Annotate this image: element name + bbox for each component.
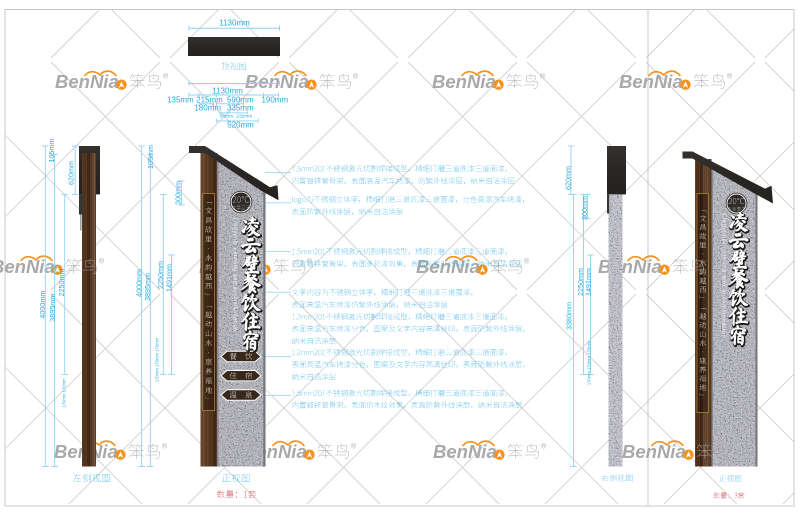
svg-text:105mm: 105mm [146, 145, 155, 169]
svg-text:170mm 170mm 170mm: 170mm 170mm 170mm [155, 337, 160, 382]
svg-text:190mm: 190mm [261, 95, 288, 104]
svg-text:®: ® [353, 73, 359, 81]
svg-text:4000mm: 4000mm [134, 269, 143, 297]
svg-text:520mm: 520mm [227, 121, 254, 130]
svg-text:620mm: 620mm [564, 166, 573, 190]
svg-text:®: ® [541, 443, 547, 451]
svg-text:93mm: 93mm [220, 113, 233, 119]
svg-text:BenNia: BenNia [0, 256, 55, 277]
svg-text:1491mm: 1491mm [584, 268, 593, 296]
svg-text:Lingyunbi catering and accommo: Lingyunbi catering and accommodation [232, 218, 238, 332]
svg-text:3895mm: 3895mm [48, 294, 57, 322]
svg-text:®: ® [163, 73, 169, 81]
svg-text:3380mm: 3380mm [565, 302, 574, 330]
svg-text:1130mm: 1130mm [219, 19, 250, 28]
svg-text:335mm: 335mm [227, 104, 254, 113]
svg-text:105mm: 105mm [47, 139, 56, 163]
svg-text:135mm: 135mm [167, 95, 194, 104]
svg-text:®: ® [351, 443, 357, 451]
svg-text:®: ® [99, 258, 105, 266]
svg-text:1130mm: 1130mm [212, 87, 243, 96]
svg-text:170mm 170mm: 170mm 170mm [62, 378, 67, 408]
svg-text:®: ® [524, 258, 530, 266]
svg-text:300mm: 300mm [173, 181, 182, 205]
svg-text:1491mm: 1491mm [164, 264, 173, 292]
svg-text:170mm 170mm 170mm: 170mm 170mm 170mm [587, 340, 592, 385]
svg-text:®: ® [727, 73, 733, 81]
svg-text:180mm: 180mm [194, 104, 221, 113]
svg-text:232mm: 232mm [236, 113, 252, 119]
svg-text:®: ® [162, 443, 168, 451]
svg-text:4000mm: 4000mm [38, 291, 47, 319]
svg-text:620mm: 620mm [67, 161, 76, 185]
svg-text:300mm: 300mm [580, 196, 589, 220]
svg-text:Lingyunbi catering and accommo: Lingyunbi catering and accommodation [721, 214, 727, 339]
svg-text:3895mm: 3895mm [143, 273, 152, 301]
svg-text:2250mm: 2250mm [57, 269, 66, 297]
svg-text:®: ® [540, 73, 546, 81]
